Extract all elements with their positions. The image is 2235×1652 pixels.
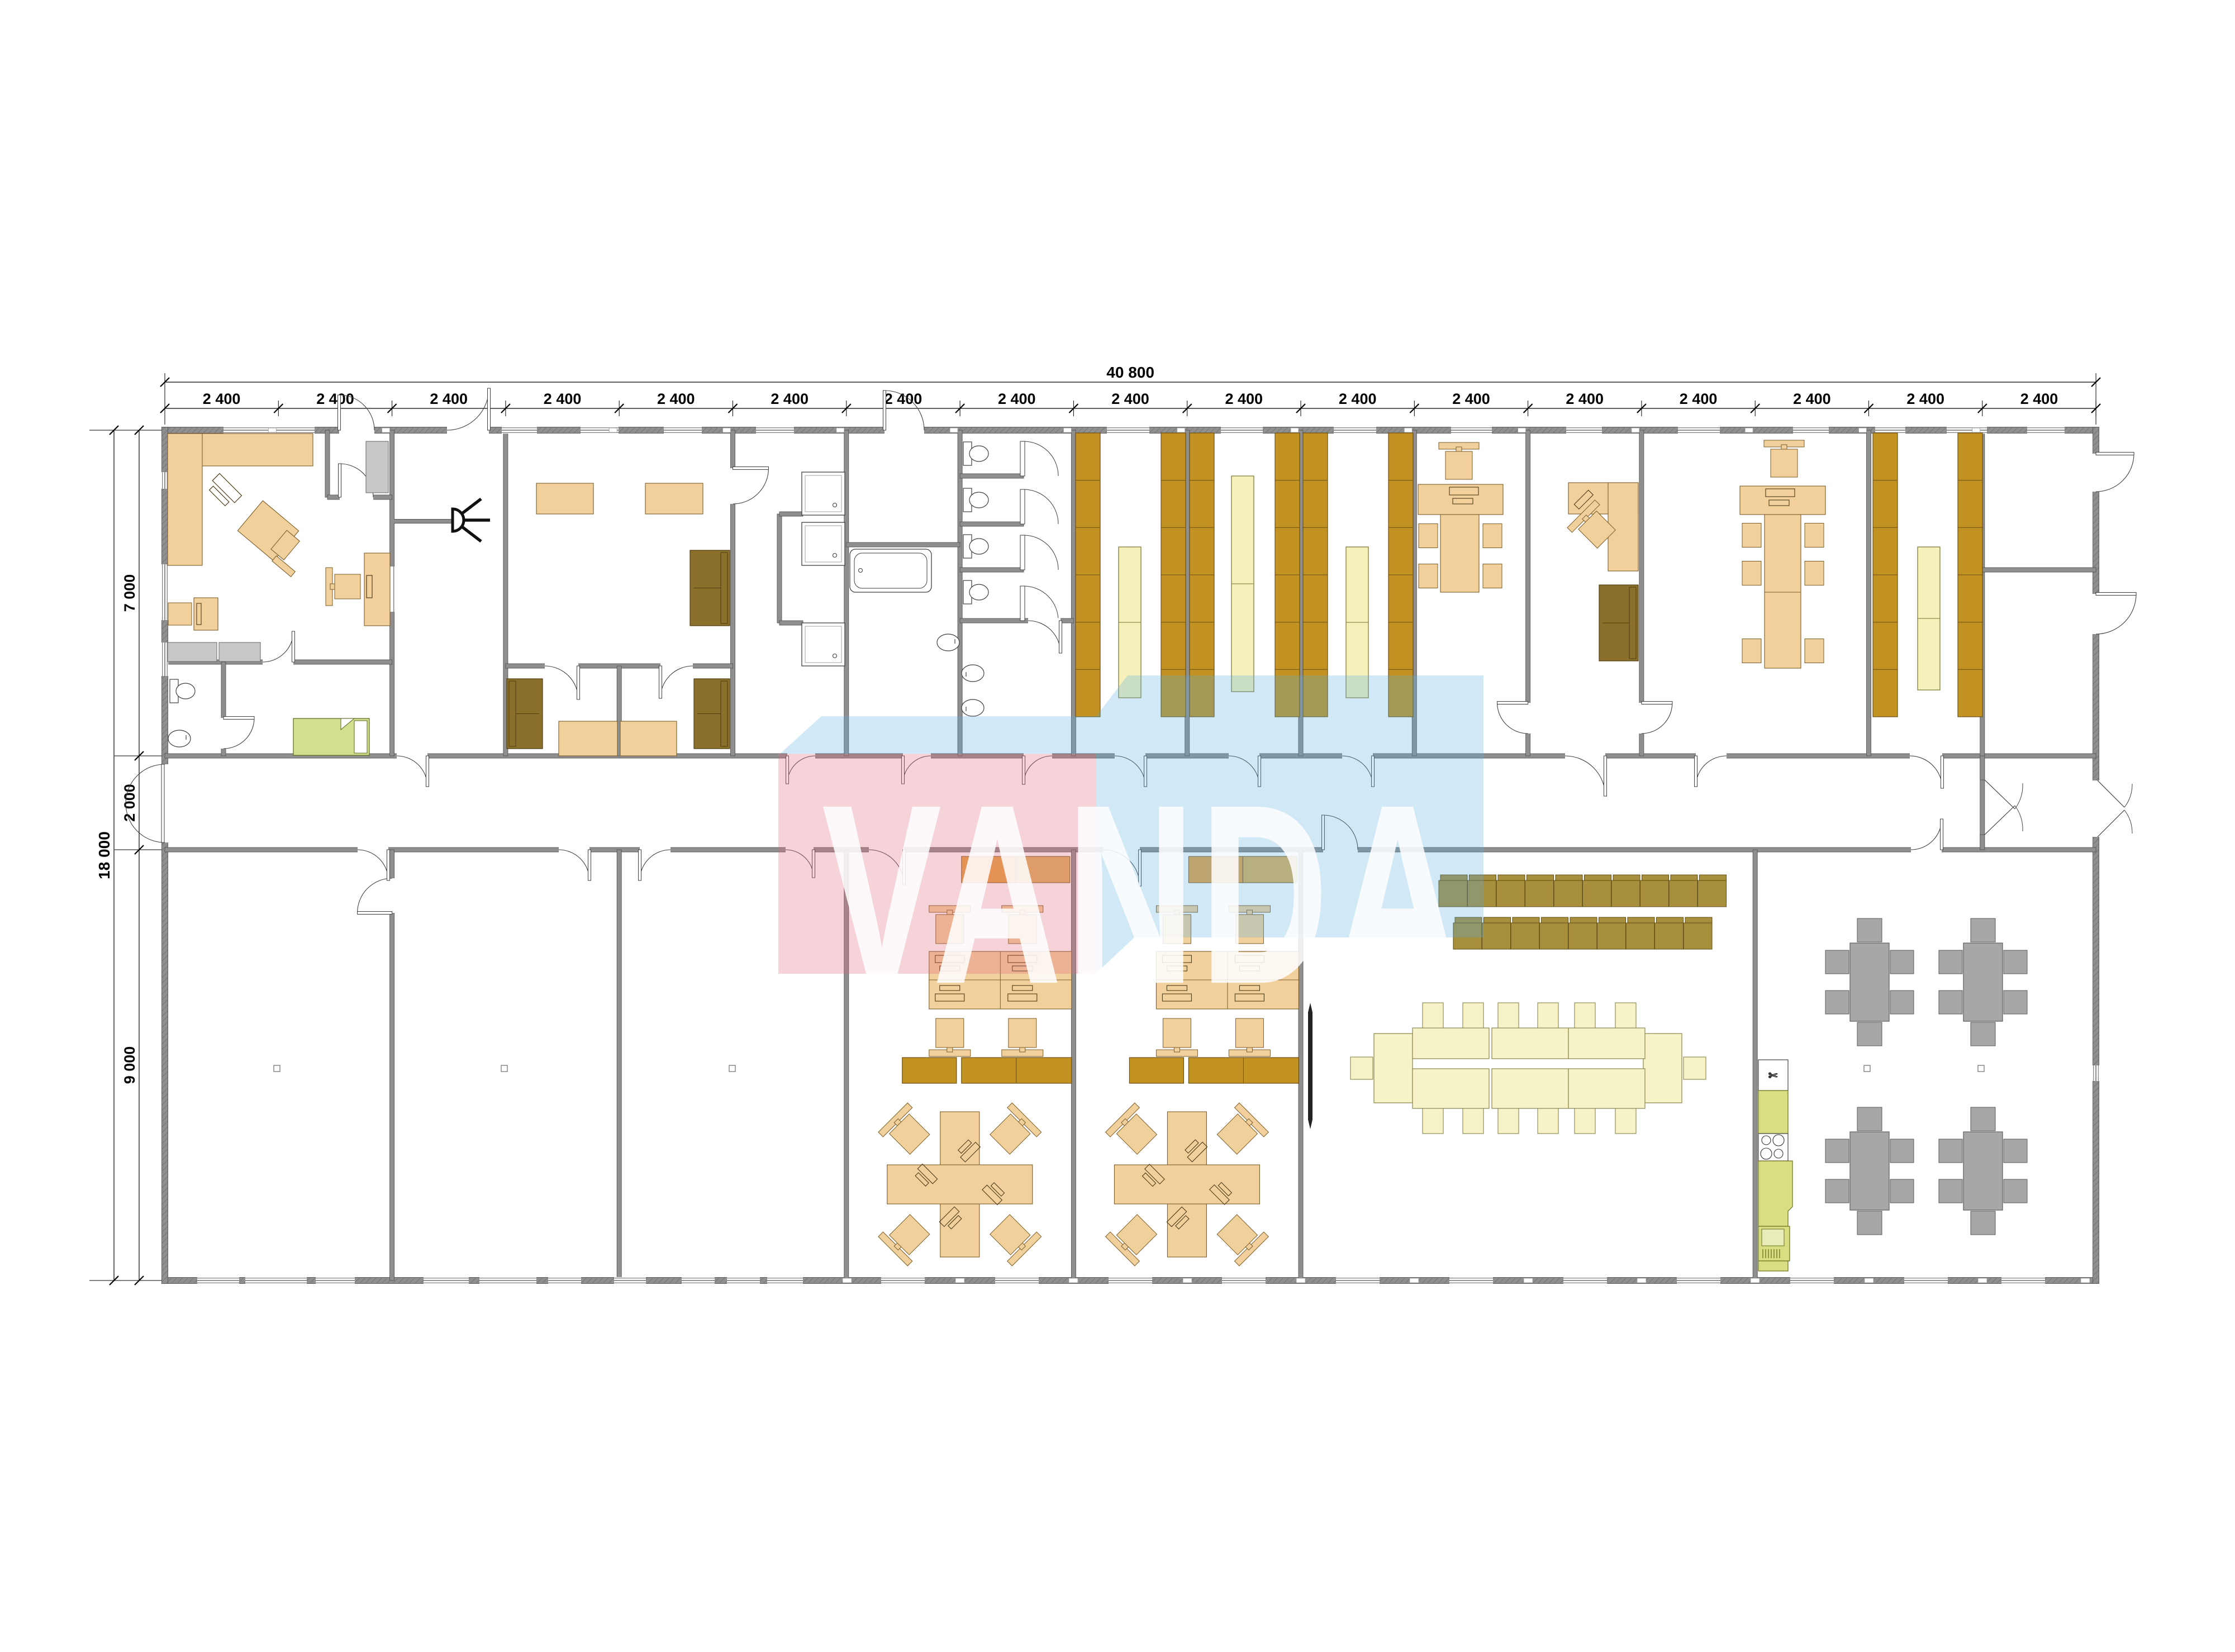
svg-text:2 400: 2 400 (203, 391, 241, 407)
svg-text:2 400: 2 400 (1111, 391, 1149, 407)
svg-text:2 400: 2 400 (998, 391, 1036, 407)
svg-text:2 400: 2 400 (1452, 391, 1490, 407)
svg-text:VANDA: VANDA (823, 753, 1461, 1035)
svg-text:2 400: 2 400 (2020, 391, 2058, 407)
svg-text:40 800: 40 800 (1106, 364, 1154, 381)
svg-text:✄: ✄ (1768, 1070, 1778, 1082)
svg-text:2 400: 2 400 (1566, 391, 1604, 407)
svg-text:2 400: 2 400 (885, 391, 922, 407)
svg-text:2 400: 2 400 (430, 391, 468, 407)
svg-text:2 400: 2 400 (1680, 391, 1718, 407)
svg-text:2 000: 2 000 (121, 784, 138, 822)
svg-text:2 400: 2 400 (771, 391, 809, 407)
svg-text:18 000: 18 000 (96, 831, 113, 879)
svg-text:7 000: 7 000 (121, 574, 138, 612)
svg-text:2 400: 2 400 (1339, 391, 1377, 407)
svg-text:2 400: 2 400 (1906, 391, 1944, 407)
svg-text:2 400: 2 400 (1793, 391, 1831, 407)
svg-text:9 000: 9 000 (121, 1046, 138, 1084)
svg-text:2 400: 2 400 (657, 391, 695, 407)
svg-text:2 400: 2 400 (316, 391, 354, 407)
svg-text:2 400: 2 400 (544, 391, 582, 407)
svg-text:2 400: 2 400 (1225, 391, 1263, 407)
